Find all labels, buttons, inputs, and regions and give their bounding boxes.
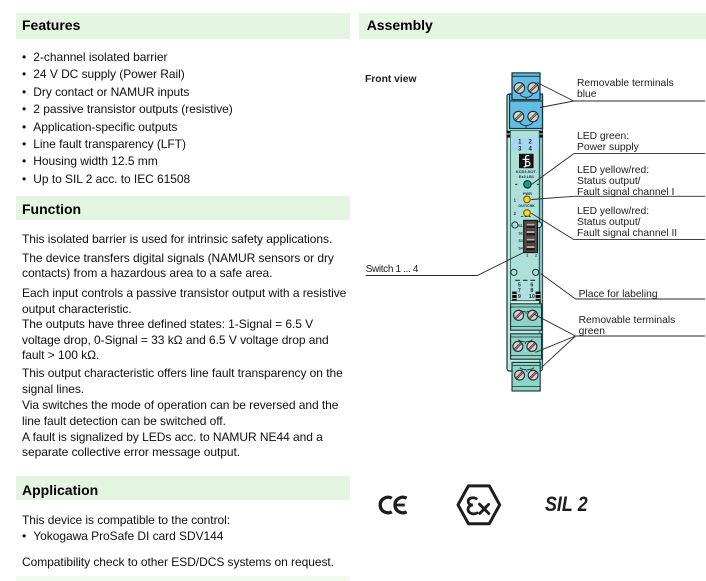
svg-text:S2: S2 — [518, 232, 522, 236]
svg-text:10: 10 — [529, 294, 535, 300]
svg-text:1: 1 — [526, 254, 528, 258]
svg-text:S1: S1 — [518, 224, 522, 228]
svg-text:Ex2.LB1: Ex2.LB1 — [519, 174, 535, 179]
svg-text:2: 2 — [535, 254, 537, 258]
svg-text:S3: S3 — [518, 239, 522, 243]
svg-text:9: 9 — [518, 294, 521, 300]
svg-text:S4: S4 — [518, 247, 522, 251]
svg-text:PWR: PWR — [523, 192, 532, 196]
svg-text:OUT/CHK: OUT/CHK — [518, 204, 535, 208]
